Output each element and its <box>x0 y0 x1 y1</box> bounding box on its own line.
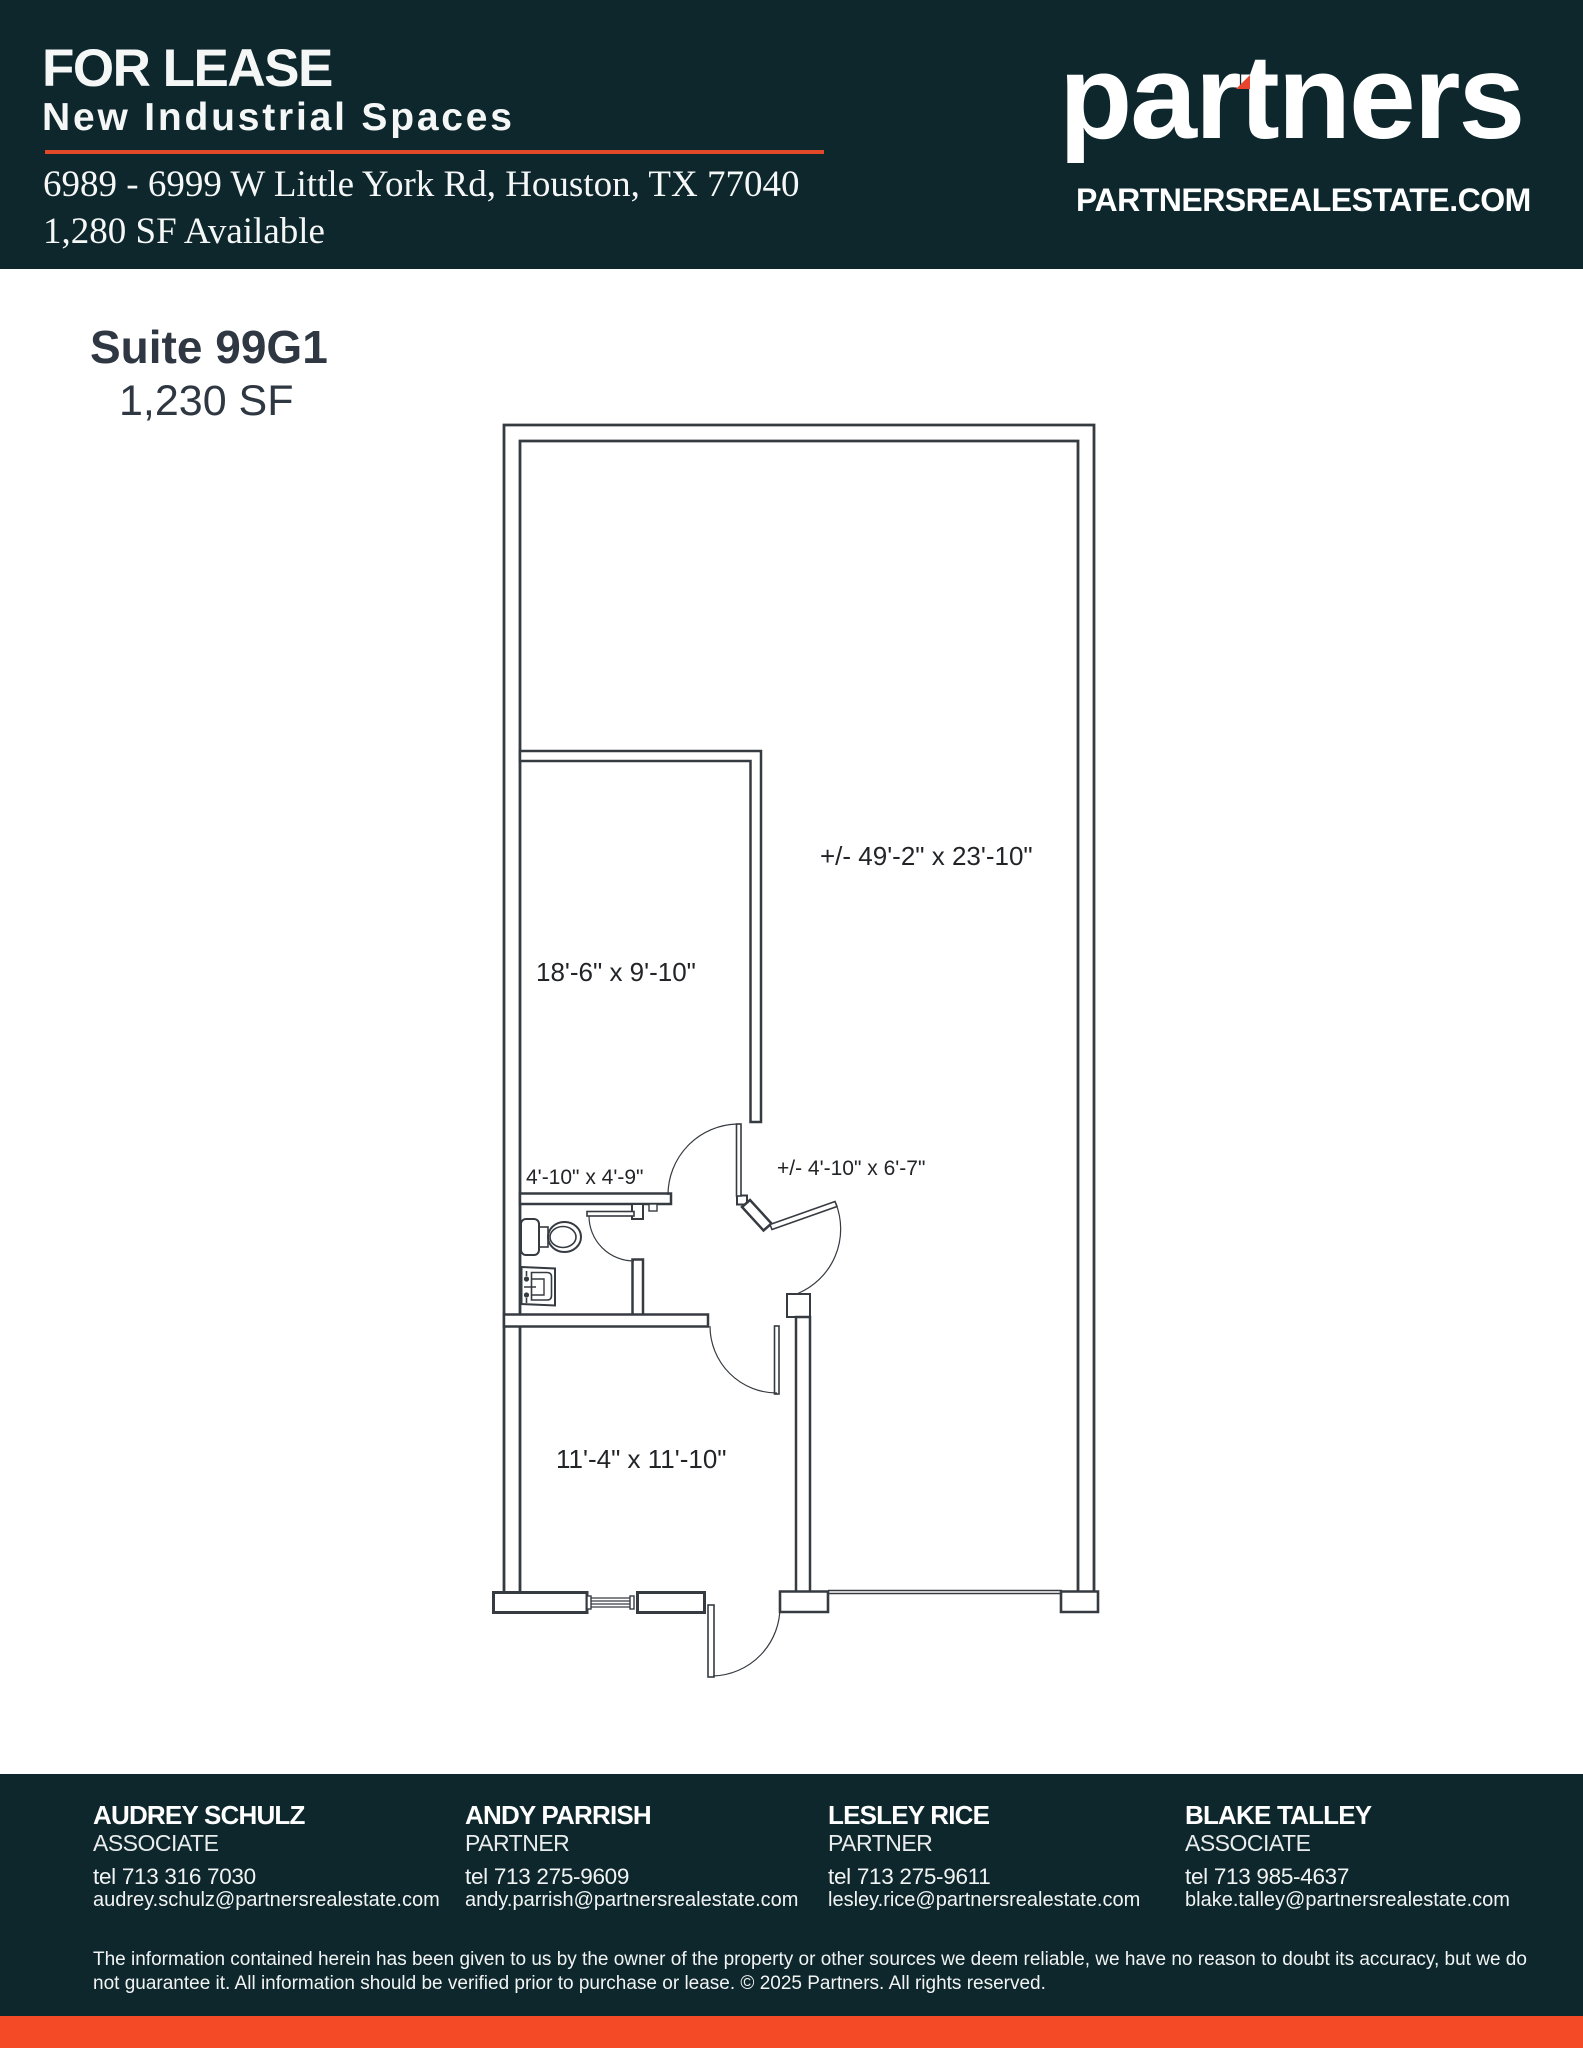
svg-text:11'-4" x 11'-10": 11'-4" x 11'-10" <box>556 1444 727 1474</box>
svg-text:4'-10" x 4'-9": 4'-10" x 4'-9" <box>526 1166 643 1189</box>
svg-text:+/- 4'-10" x 6'-7": +/- 4'-10" x 6'-7" <box>777 1157 925 1180</box>
svg-text:+/- 49'-2" x 23'-10": +/- 49'-2" x 23'-10" <box>820 841 1033 871</box>
svg-text:18'-6" x 9'-10": 18'-6" x 9'-10" <box>536 957 696 987</box>
